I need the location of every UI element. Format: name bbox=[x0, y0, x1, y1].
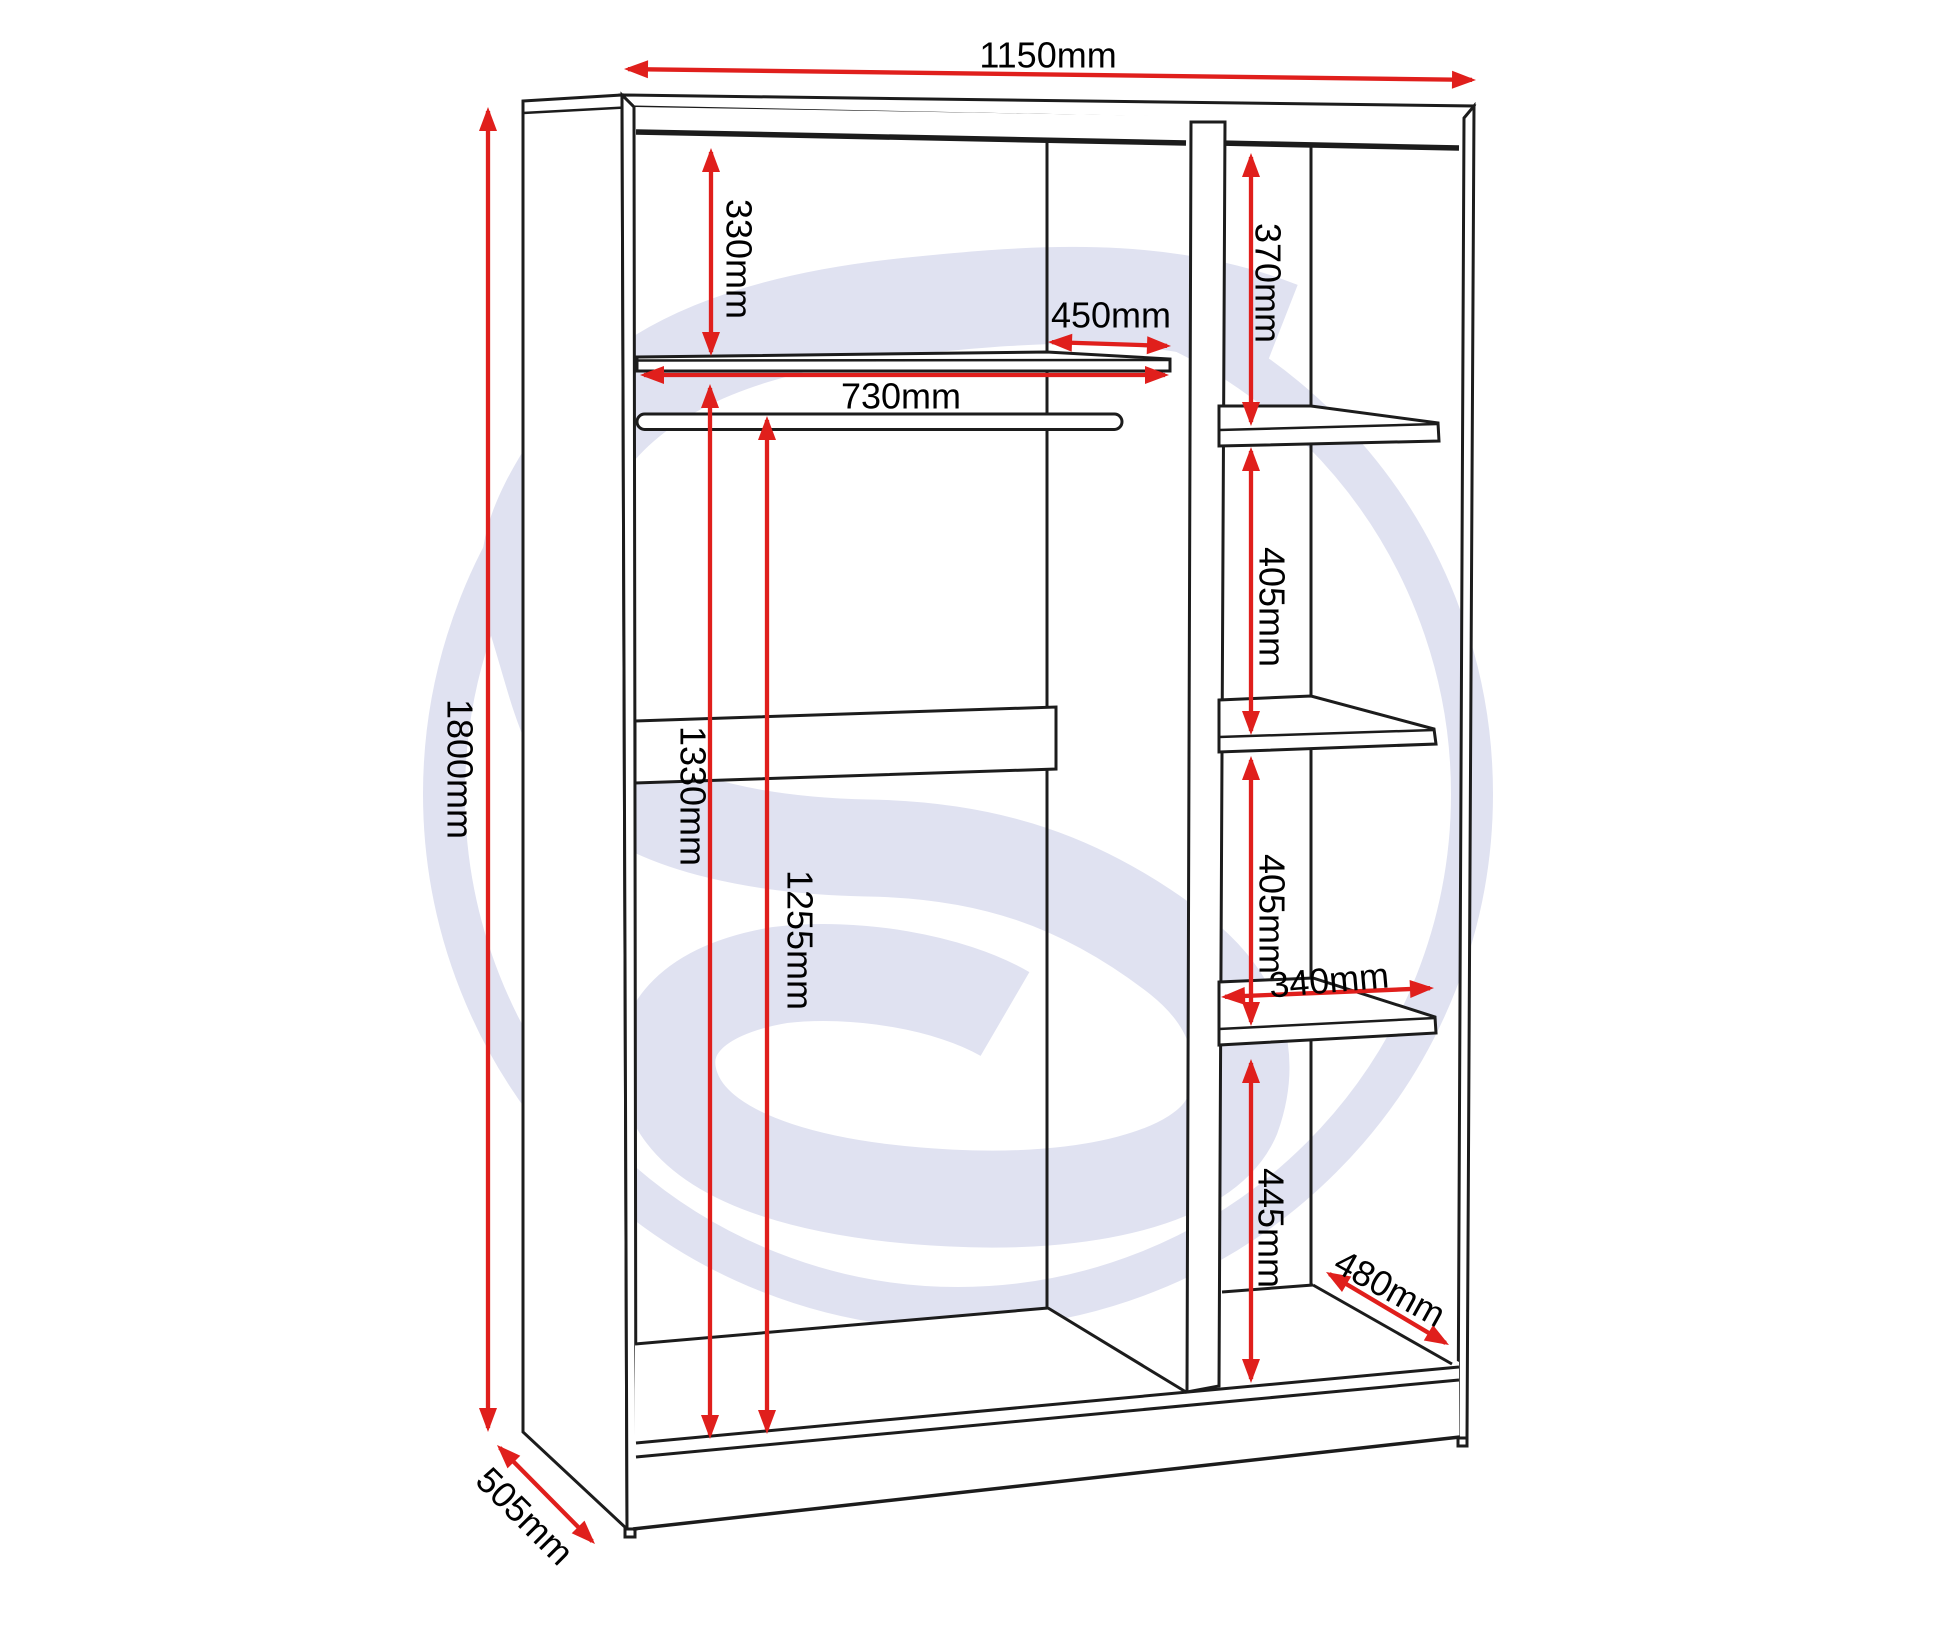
svg-text:730mm: 730mm bbox=[841, 376, 961, 417]
svg-text:405mm: 405mm bbox=[1252, 547, 1293, 667]
svg-text:1150mm: 1150mm bbox=[979, 35, 1116, 76]
svg-text:1800mm: 1800mm bbox=[440, 699, 481, 839]
svg-text:1330mm: 1330mm bbox=[673, 726, 714, 866]
svg-text:1255mm: 1255mm bbox=[780, 870, 821, 1010]
svg-text:450mm: 450mm bbox=[1051, 295, 1171, 336]
svg-text:370mm: 370mm bbox=[1248, 223, 1289, 343]
svg-text:445mm: 445mm bbox=[1251, 1168, 1292, 1288]
svg-text:330mm: 330mm bbox=[719, 199, 760, 319]
svg-text:405mm: 405mm bbox=[1252, 854, 1293, 974]
